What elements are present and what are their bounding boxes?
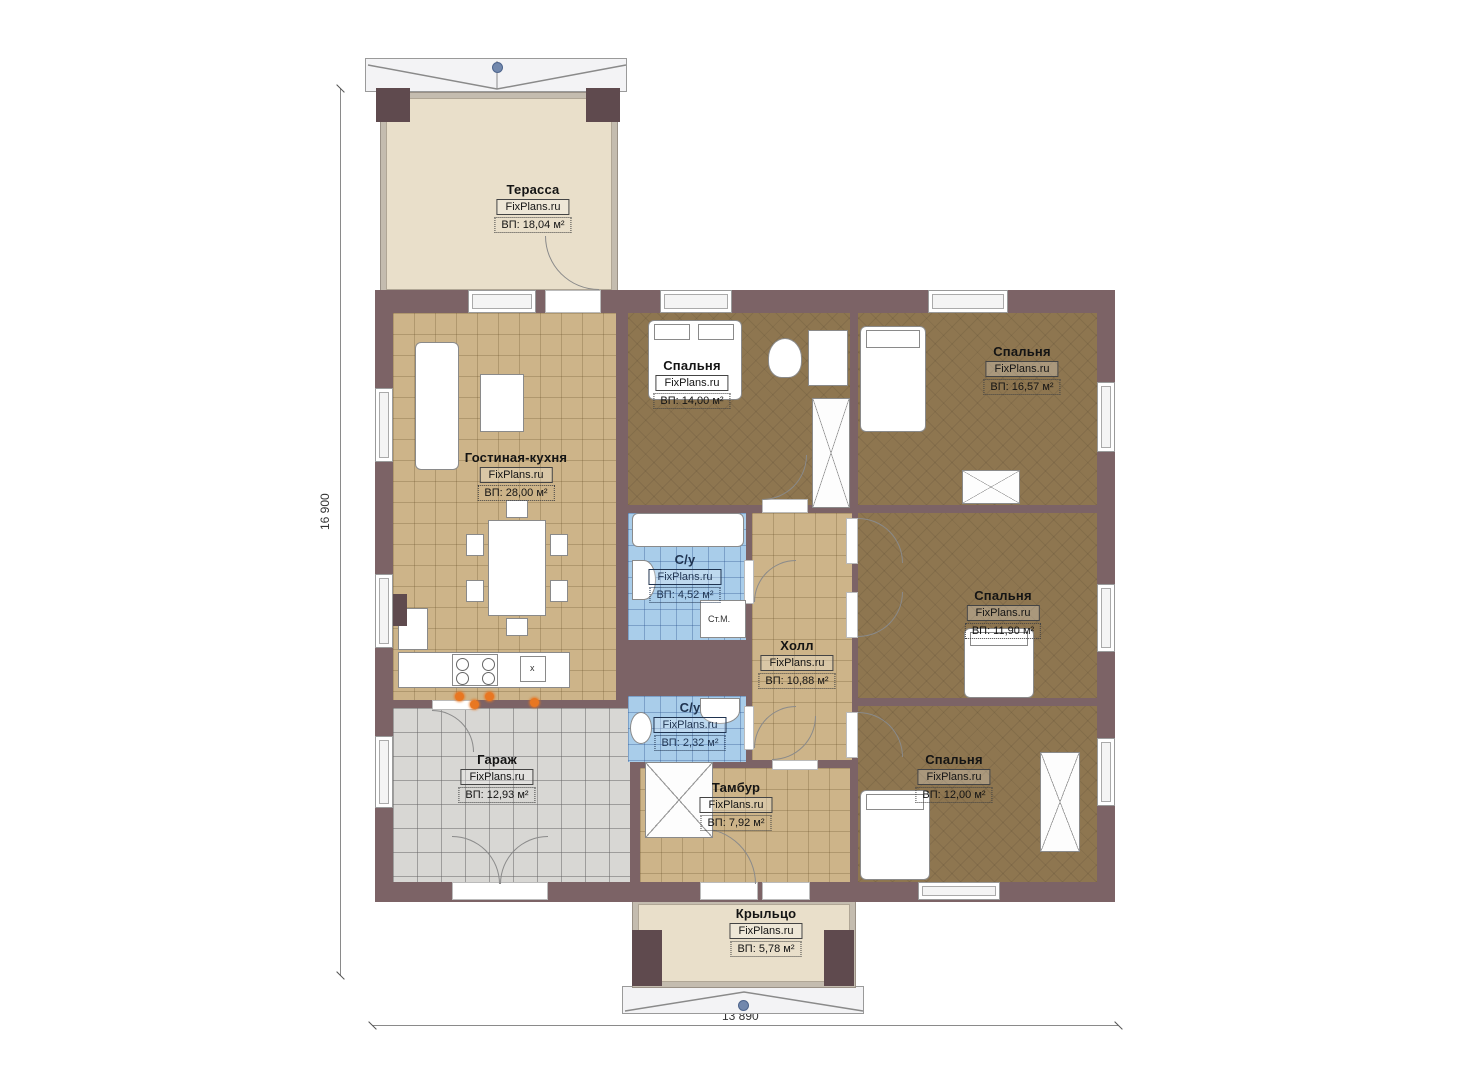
room-label-hall: Холл FixPlans.ru ВП: 10,88 м² bbox=[758, 638, 835, 689]
window bbox=[468, 290, 536, 313]
room-name: Тамбур bbox=[712, 780, 760, 795]
dining-chair bbox=[550, 534, 568, 556]
bathroom1-door-opening bbox=[744, 560, 754, 604]
bedroom1-door-opening bbox=[762, 499, 808, 513]
dimension-line-horizontal bbox=[372, 1025, 1118, 1026]
pillow bbox=[654, 324, 690, 340]
brand-watermark: FixPlans.ru bbox=[479, 467, 552, 483]
terrace-post bbox=[376, 88, 410, 122]
burner-flame bbox=[455, 692, 464, 701]
dimension-line-vertical bbox=[340, 88, 341, 976]
burner-flame bbox=[470, 700, 479, 709]
room-label-bedroom2: Спальня FixPlans.ru ВП: 16,57 м² bbox=[983, 344, 1060, 395]
room-name: Спальня bbox=[663, 358, 721, 373]
coffee-table bbox=[480, 374, 524, 432]
terrace-post bbox=[586, 88, 620, 122]
room-label-living: Гостиная-кухня FixPlans.ru ВП: 28,00 м² bbox=[465, 450, 567, 501]
room-label-terrace: Терасса FixPlans.ru ВП: 18,04 м² bbox=[494, 182, 571, 233]
room-area: ВП: 10,88 м² bbox=[758, 673, 835, 689]
room-area: ВП: 12,00 м² bbox=[915, 787, 992, 803]
room-area: ВП: 5,78 м² bbox=[730, 941, 801, 957]
room-label-garage: Гараж FixPlans.ru ВП: 12,93 м² bbox=[458, 752, 535, 803]
room-area: ВП: 28,00 м² bbox=[477, 485, 554, 501]
room-name: Холл bbox=[780, 638, 813, 653]
stove-burner bbox=[482, 658, 495, 671]
room-label-bedroom1: Спальня FixPlans.ru ВП: 14,00 м² bbox=[653, 358, 730, 409]
window bbox=[375, 388, 393, 462]
dining-chair bbox=[466, 534, 484, 556]
brand-watermark: FixPlans.ru bbox=[496, 199, 569, 215]
brand-watermark: FixPlans.ru bbox=[699, 797, 772, 813]
room-name: С/у bbox=[680, 700, 701, 715]
wardrobe bbox=[962, 470, 1020, 504]
dining-chair bbox=[466, 580, 484, 602]
brand-watermark: FixPlans.ru bbox=[653, 717, 726, 733]
porch-post bbox=[632, 930, 662, 986]
sofa bbox=[415, 342, 459, 470]
room-area: ВП: 12,93 м² bbox=[458, 787, 535, 803]
window bbox=[928, 290, 1008, 313]
wardrobe bbox=[812, 398, 850, 508]
floor-plan: 16 900 13 890 bbox=[0, 0, 1474, 1080]
window bbox=[1097, 738, 1115, 806]
bedroom2-door-opening bbox=[846, 518, 858, 564]
pillow bbox=[698, 324, 734, 340]
dining-table bbox=[488, 520, 546, 616]
burner-flame bbox=[530, 698, 539, 707]
room-name: Спальня bbox=[993, 344, 1051, 359]
stove-burner bbox=[456, 658, 469, 671]
dimension-height-label: 16 900 bbox=[318, 493, 332, 530]
brand-watermark: FixPlans.ru bbox=[985, 361, 1058, 377]
room-name: Спальня bbox=[974, 588, 1032, 603]
ridge-marker-top bbox=[492, 62, 503, 73]
desk-chair bbox=[768, 338, 802, 378]
terrace-door-opening bbox=[545, 290, 601, 313]
tambour-hall-door-opening bbox=[772, 760, 818, 770]
room-label-porch: Крыльцо FixPlans.ru ВП: 5,78 м² bbox=[729, 906, 802, 957]
washbasin bbox=[630, 712, 652, 744]
brand-watermark: FixPlans.ru bbox=[917, 769, 990, 785]
room-name: Терасса bbox=[507, 182, 560, 197]
desk bbox=[808, 330, 848, 386]
dining-chair bbox=[550, 580, 568, 602]
room-area: ВП: 11,90 м² bbox=[965, 623, 1041, 639]
window bbox=[375, 574, 393, 648]
room-area: ВП: 7,92 м² bbox=[700, 815, 771, 831]
room-name: Спальня bbox=[925, 752, 983, 767]
dining-chair bbox=[506, 500, 528, 518]
room-area: ВП: 16,57 м² bbox=[983, 379, 1060, 395]
washing-machine-label: Ст.М. bbox=[708, 614, 730, 624]
room-name: Гостиная-кухня bbox=[465, 450, 567, 465]
entrance-door-opening bbox=[700, 882, 758, 900]
room-area: ВП: 2,32 м² bbox=[654, 735, 725, 751]
window bbox=[1097, 382, 1115, 452]
dining-chair bbox=[506, 618, 528, 636]
bedroom4-door-opening bbox=[846, 712, 858, 758]
window bbox=[660, 290, 732, 313]
room-name: Крыльцо bbox=[736, 906, 797, 921]
pillow bbox=[866, 330, 920, 348]
brand-watermark: FixPlans.ru bbox=[460, 769, 533, 785]
room-label-bedroom3: Спальня FixPlans.ru ВП: 11,90 м² bbox=[965, 588, 1041, 639]
room-label-bedroom4: Спальня FixPlans.ru ВП: 12,00 м² bbox=[915, 752, 992, 803]
kitchen-sink: x bbox=[520, 656, 546, 682]
stove-burner bbox=[482, 672, 495, 685]
bedroom3-door-opening bbox=[846, 592, 858, 638]
entrance-side-opening bbox=[762, 882, 810, 900]
brand-watermark: FixPlans.ru bbox=[655, 375, 728, 391]
burner-flame bbox=[485, 692, 494, 701]
room-label-bathroom1: С/у FixPlans.ru ВП: 4,52 м² bbox=[648, 552, 721, 603]
brand-watermark: FixPlans.ru bbox=[648, 569, 721, 585]
room-area: ВП: 18,04 м² bbox=[494, 217, 571, 233]
garage-door-opening bbox=[452, 882, 548, 900]
ridge-marker-bottom bbox=[738, 1000, 749, 1011]
window bbox=[918, 882, 1000, 900]
window bbox=[375, 736, 393, 808]
brand-watermark: FixPlans.ru bbox=[966, 605, 1039, 621]
room-name: С/у bbox=[675, 552, 696, 567]
wardrobe bbox=[1040, 752, 1080, 852]
room-label-bathroom2: С/у FixPlans.ru ВП: 2,32 м² bbox=[653, 700, 726, 751]
brand-watermark: FixPlans.ru bbox=[729, 923, 802, 939]
window bbox=[1097, 584, 1115, 652]
brand-watermark: FixPlans.ru bbox=[760, 655, 833, 671]
sink-mark: x bbox=[530, 663, 535, 673]
bathtub bbox=[632, 513, 744, 547]
stove-burner bbox=[456, 672, 469, 685]
porch-post bbox=[824, 930, 854, 986]
room-name: Гараж bbox=[477, 752, 517, 767]
bathroom2-door-opening bbox=[744, 706, 754, 750]
room-area: ВП: 4,52 м² bbox=[649, 587, 720, 603]
room-label-tambour: Тамбур FixPlans.ru ВП: 7,92 м² bbox=[699, 780, 772, 831]
room-area: ВП: 14,00 м² bbox=[653, 393, 730, 409]
vent-shaft bbox=[393, 594, 407, 626]
